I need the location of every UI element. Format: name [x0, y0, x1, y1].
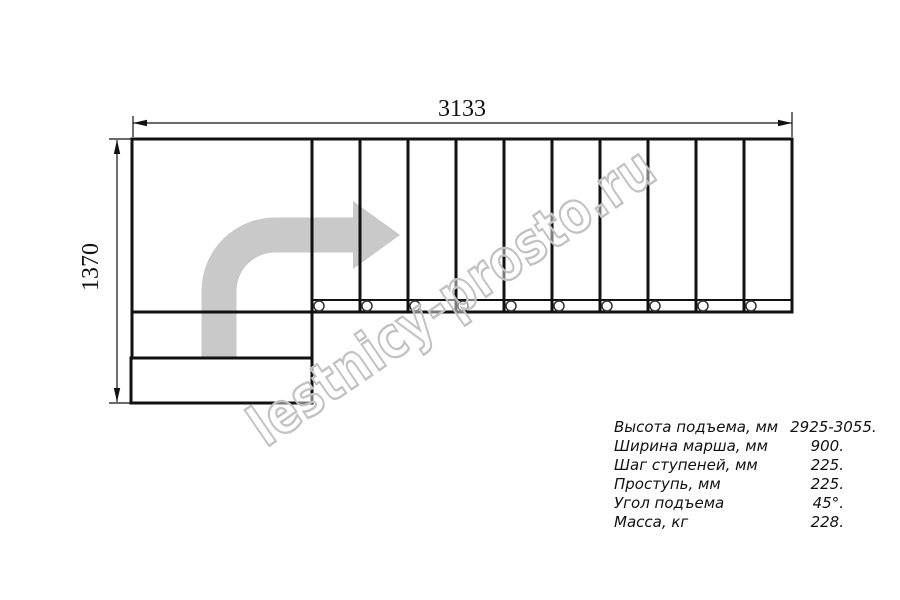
spec-label: Проступь, мм: [614, 475, 721, 494]
spec-row-tread: Проступь, мм 225.: [614, 475, 844, 494]
spec-label: Ширина марша, мм: [614, 437, 768, 456]
post-circle: [698, 301, 708, 311]
width-dimension-label: 3133: [438, 96, 486, 122]
spec-label: Масса, кг: [614, 513, 688, 532]
spec-row-rise-angle: Угол подъема 45°.: [614, 494, 844, 513]
spec-label: Шаг ступеней, мм: [614, 456, 758, 475]
spec-label: Угол подъема: [614, 494, 724, 513]
dimension-arrowhead-top: [114, 140, 120, 154]
spec-value: 45°.: [813, 494, 844, 513]
post-circle: [314, 301, 324, 311]
height-dimension-label: 1370: [78, 243, 104, 291]
post-circle: [506, 301, 516, 311]
post-circle: [602, 301, 612, 311]
dimension-arrowhead-bottom: [114, 388, 120, 402]
spec-row-step-pitch: Шаг ступеней, мм 225.: [614, 456, 844, 475]
spec-value: 225.: [811, 456, 844, 475]
spec-row-mass: Масса, кг 228.: [614, 513, 844, 532]
post-circle: [554, 301, 564, 311]
dimension-arrowhead-right: [778, 120, 792, 126]
spec-label: Высота подъема, мм: [614, 418, 778, 437]
dimension-arrowhead-left: [133, 120, 147, 126]
spec-table: Высота подъема, мм 2925-3055. Ширина мар…: [614, 418, 844, 532]
spec-value: 2925-3055.: [790, 418, 877, 437]
post-circle: [650, 301, 660, 311]
height-dimension: [109, 139, 131, 403]
spec-value: 228.: [811, 513, 844, 532]
post-circle: [746, 301, 756, 311]
spec-row-flight-width: Ширина марша, мм 900.: [614, 437, 844, 456]
spec-value: 900.: [811, 437, 844, 456]
watermark-text: lestnicy-prosto.ru: [237, 134, 668, 459]
spec-value: 225.: [811, 475, 844, 494]
post-circle: [362, 301, 372, 311]
staircase-drawing-page: 3133 1370 lestnicy-prosto.ru Высота подъ…: [0, 0, 900, 600]
spec-row-rise-height: Высота подъема, мм 2925-3055.: [614, 418, 844, 437]
